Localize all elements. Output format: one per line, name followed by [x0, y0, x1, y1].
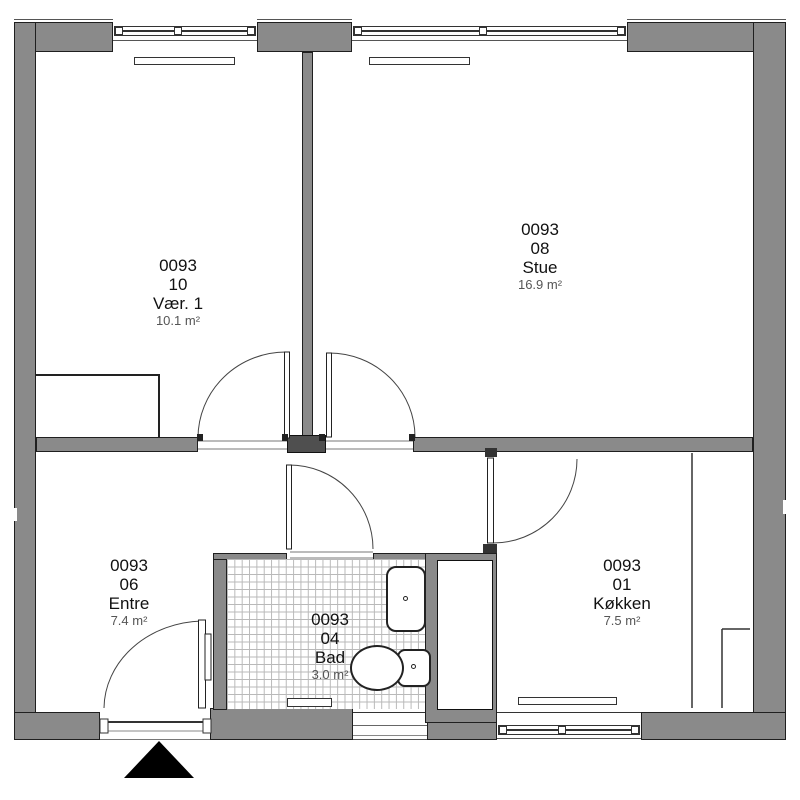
room-number: 06 — [109, 575, 150, 594]
door-jamb — [282, 434, 288, 441]
entrance-marker-icon — [124, 741, 194, 778]
door-arc-kitchen — [493, 459, 577, 543]
floor-plan: 0093 10 Vær. 1 10.1 m² 0093 08 Stue 16.9… — [0, 0, 800, 800]
threshold-livingroom-door — [326, 441, 413, 449]
door-leaf-kitchen — [488, 458, 494, 543]
room-name: Bad — [311, 648, 349, 667]
room-label-bedroom: 0093 10 Vær. 1 10.1 m² — [153, 256, 203, 328]
room-name: Entre — [109, 594, 150, 613]
room-label-entry: 0093 06 Entre 7.4 m² — [109, 556, 150, 628]
room-number: 08 — [518, 239, 562, 258]
room-name: Stue — [518, 258, 562, 277]
door-leaf-entrance — [199, 620, 206, 708]
door-arc-bathroom — [289, 465, 373, 549]
kitchen-door-jamb-top — [485, 448, 497, 457]
entrance-jamb-right — [203, 719, 211, 733]
room-area: 3.0 m² — [311, 667, 349, 682]
door-jamb — [197, 434, 203, 441]
room-area: 10.1 m² — [153, 313, 203, 328]
room-area: 16.9 m² — [518, 277, 562, 292]
door-leaf-livingroom — [327, 353, 332, 437]
room-id: 0093 — [153, 256, 203, 275]
room-id: 0093 — [593, 556, 651, 575]
door-jamb — [409, 434, 415, 441]
threshold-bathroom-door — [290, 552, 373, 558]
room-number: 10 — [153, 275, 203, 294]
kitchen-appliance-outline — [722, 629, 750, 708]
kitchen-door-jamb-bottom — [483, 544, 497, 553]
room-id: 0093 — [518, 220, 562, 239]
room-id: 0093 — [109, 556, 150, 575]
linework-layer — [0, 0, 800, 800]
door-leaf-bathroom — [287, 465, 292, 549]
door-leaf-bedroom — [285, 352, 290, 438]
room-name: Vær. 1 — [153, 294, 203, 313]
room-label-livingroom: 0093 08 Stue 16.9 m² — [518, 220, 562, 292]
door-arc-livingroom — [329, 353, 415, 437]
door-arc-bedroom — [198, 352, 287, 438]
threshold-bedroom-door — [198, 441, 287, 449]
door-arc-entrance — [104, 621, 202, 708]
entrance-jamb-left — [100, 719, 108, 733]
room-name: Køkken — [593, 594, 651, 613]
entrance-door-panel — [205, 634, 211, 680]
room-id: 0093 — [311, 610, 349, 629]
wall-joint-notch-right — [783, 500, 787, 514]
room-area: 7.4 m² — [109, 613, 150, 628]
room-label-kitchen: 0093 01 Køkken 7.5 m² — [593, 556, 651, 628]
room-area: 7.5 m² — [593, 613, 651, 628]
room-label-bathroom: 0093 04 Bad 3.0 m² — [311, 610, 349, 682]
room-number: 04 — [311, 629, 349, 648]
wall-joint-notch-left — [13, 508, 17, 521]
door-jamb — [319, 434, 325, 441]
room-number: 01 — [593, 575, 651, 594]
